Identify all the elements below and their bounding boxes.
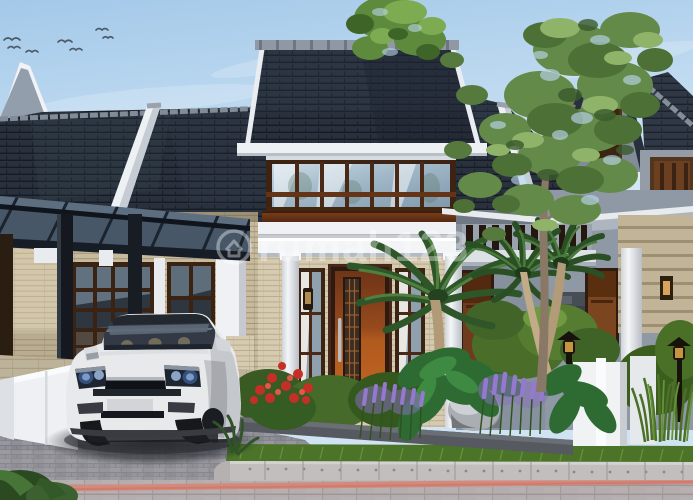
svg-text:rumah123: rumah123	[258, 223, 469, 271]
